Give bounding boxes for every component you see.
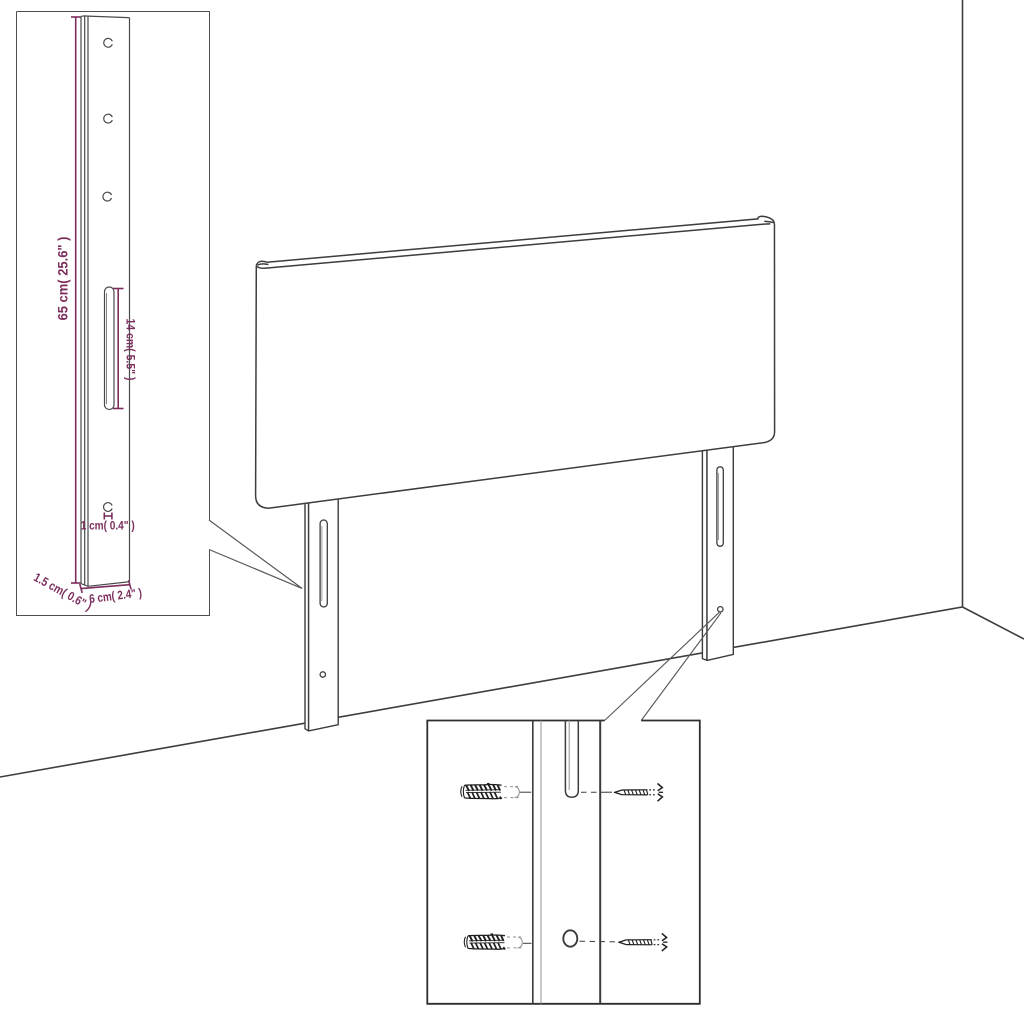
svg-text:65 cm( 25.6" ): 65 cm( 25.6" ): [56, 237, 71, 321]
svg-text:14 cm( 5.5" ): 14 cm( 5.5" ): [124, 319, 138, 381]
svg-text:1 cm( 0.4" ): 1 cm( 0.4" ): [81, 519, 135, 533]
